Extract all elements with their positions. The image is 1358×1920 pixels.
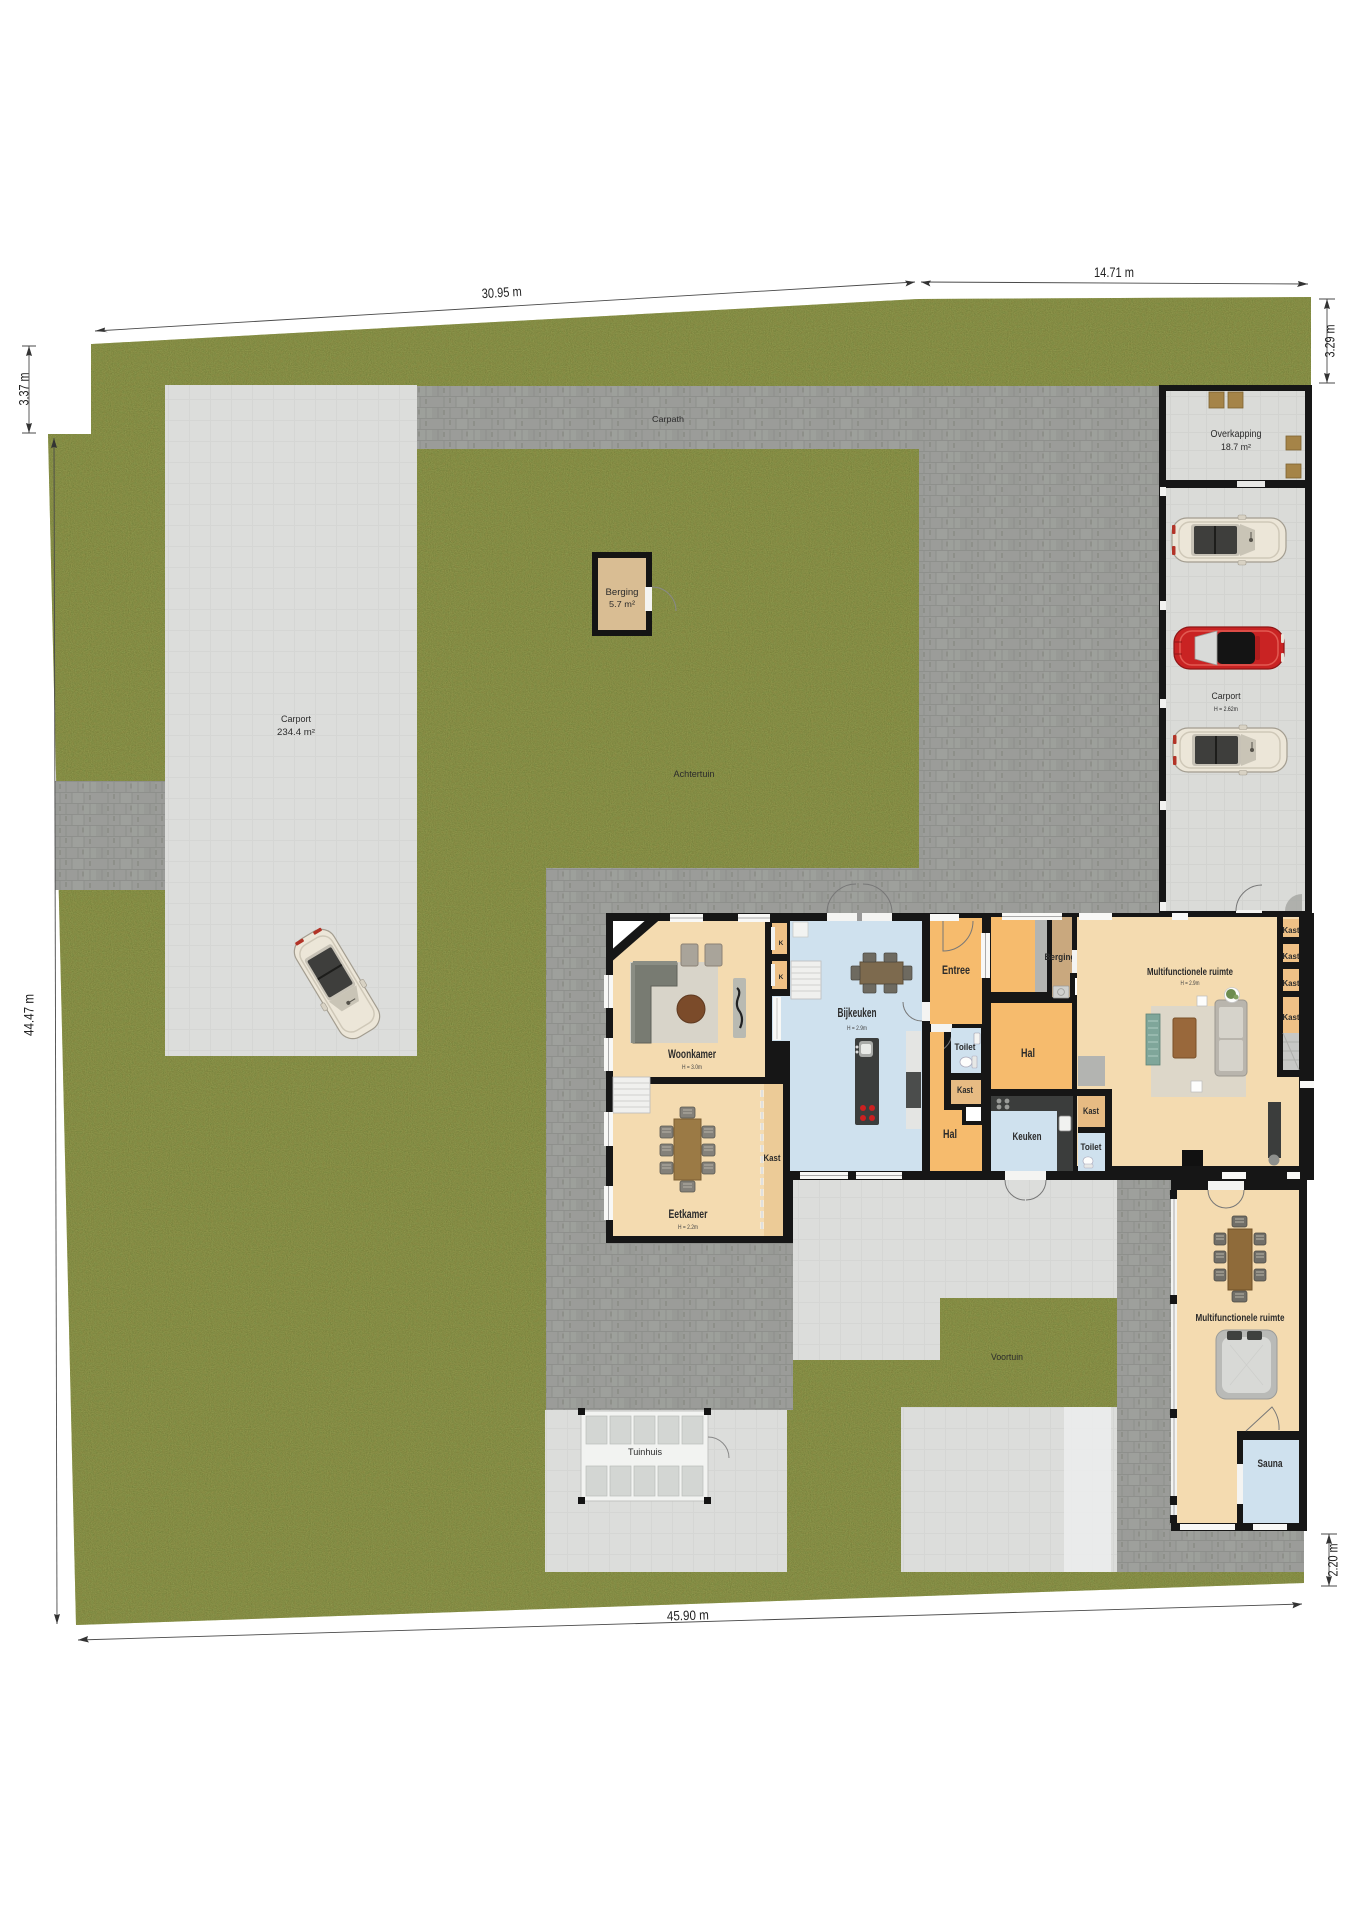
svg-text:3.29 m: 3.29 m — [1323, 325, 1338, 358]
svg-text:Sauna: Sauna — [1258, 1458, 1284, 1470]
svg-text:Hal: Hal — [943, 1127, 957, 1141]
svg-text:234.4 m²: 234.4 m² — [277, 727, 315, 737]
svg-text:5.7 m²: 5.7 m² — [609, 599, 635, 609]
svg-text:Bijkeuken: Bijkeuken — [838, 1006, 877, 1020]
svg-text:Eetkamer: Eetkamer — [669, 1207, 708, 1221]
svg-text:H = 2.9m: H = 2.9m — [847, 1025, 867, 1032]
svg-text:Carpath: Carpath — [652, 414, 684, 424]
svg-text:30.95 m: 30.95 m — [481, 284, 522, 301]
svg-text:Achtertuin: Achtertuin — [674, 769, 715, 779]
svg-text:Kast: Kast — [1283, 951, 1300, 961]
svg-text:Toilet: Toilet — [955, 1042, 976, 1052]
svg-text:Woonkamer: Woonkamer — [668, 1047, 716, 1061]
svg-text:Berging: Berging — [606, 587, 639, 597]
svg-text:Kast: Kast — [1083, 1106, 1099, 1116]
svg-text:Carport: Carport — [1212, 691, 1241, 702]
svg-text:Hal: Hal — [1021, 1046, 1035, 1060]
svg-text:Multifunctionele ruimte: Multifunctionele ruimte — [1196, 1312, 1285, 1324]
svg-text:3.37 m: 3.37 m — [17, 373, 32, 406]
svg-text:18.7 m²: 18.7 m² — [1221, 442, 1251, 452]
svg-text:Entree: Entree — [942, 965, 970, 977]
svg-text:K: K — [779, 974, 784, 981]
svg-text:H = 3.0m: H = 3.0m — [682, 1064, 702, 1071]
svg-text:Multifunctionele ruimte: Multifunctionele ruimte — [1147, 966, 1233, 978]
svg-text:Kast: Kast — [957, 1085, 973, 1095]
svg-text:Tuinhuis: Tuinhuis — [628, 1447, 663, 1457]
svg-text:H = 2.62m: H = 2.62m — [1214, 707, 1238, 713]
svg-text:Toilet: Toilet — [1081, 1142, 1102, 1152]
svg-text:Kast: Kast — [1283, 1012, 1300, 1022]
svg-text:K: K — [779, 940, 784, 947]
svg-text:45.90 m: 45.90 m — [667, 1607, 709, 1623]
svg-text:Keuken: Keuken — [1013, 1131, 1042, 1143]
svg-text:Kast: Kast — [764, 1153, 781, 1163]
svg-text:Carport: Carport — [281, 714, 311, 725]
svg-text:Voortuin: Voortuin — [991, 1352, 1023, 1362]
svg-text:Kast: Kast — [1283, 978, 1300, 988]
svg-text:Kast: Kast — [1283, 925, 1300, 935]
svg-text:Berging: Berging — [1045, 952, 1076, 963]
svg-text:H = 2.2m: H = 2.2m — [678, 1224, 698, 1231]
svg-text:44.47 m: 44.47 m — [22, 994, 37, 1036]
svg-text:2.20 m: 2.20 m — [1326, 1544, 1341, 1577]
svg-text:H = 2.9m: H = 2.9m — [1181, 980, 1200, 987]
svg-text:14.71 m: 14.71 m — [1094, 265, 1134, 280]
svg-text:Overkapping: Overkapping — [1211, 429, 1262, 440]
